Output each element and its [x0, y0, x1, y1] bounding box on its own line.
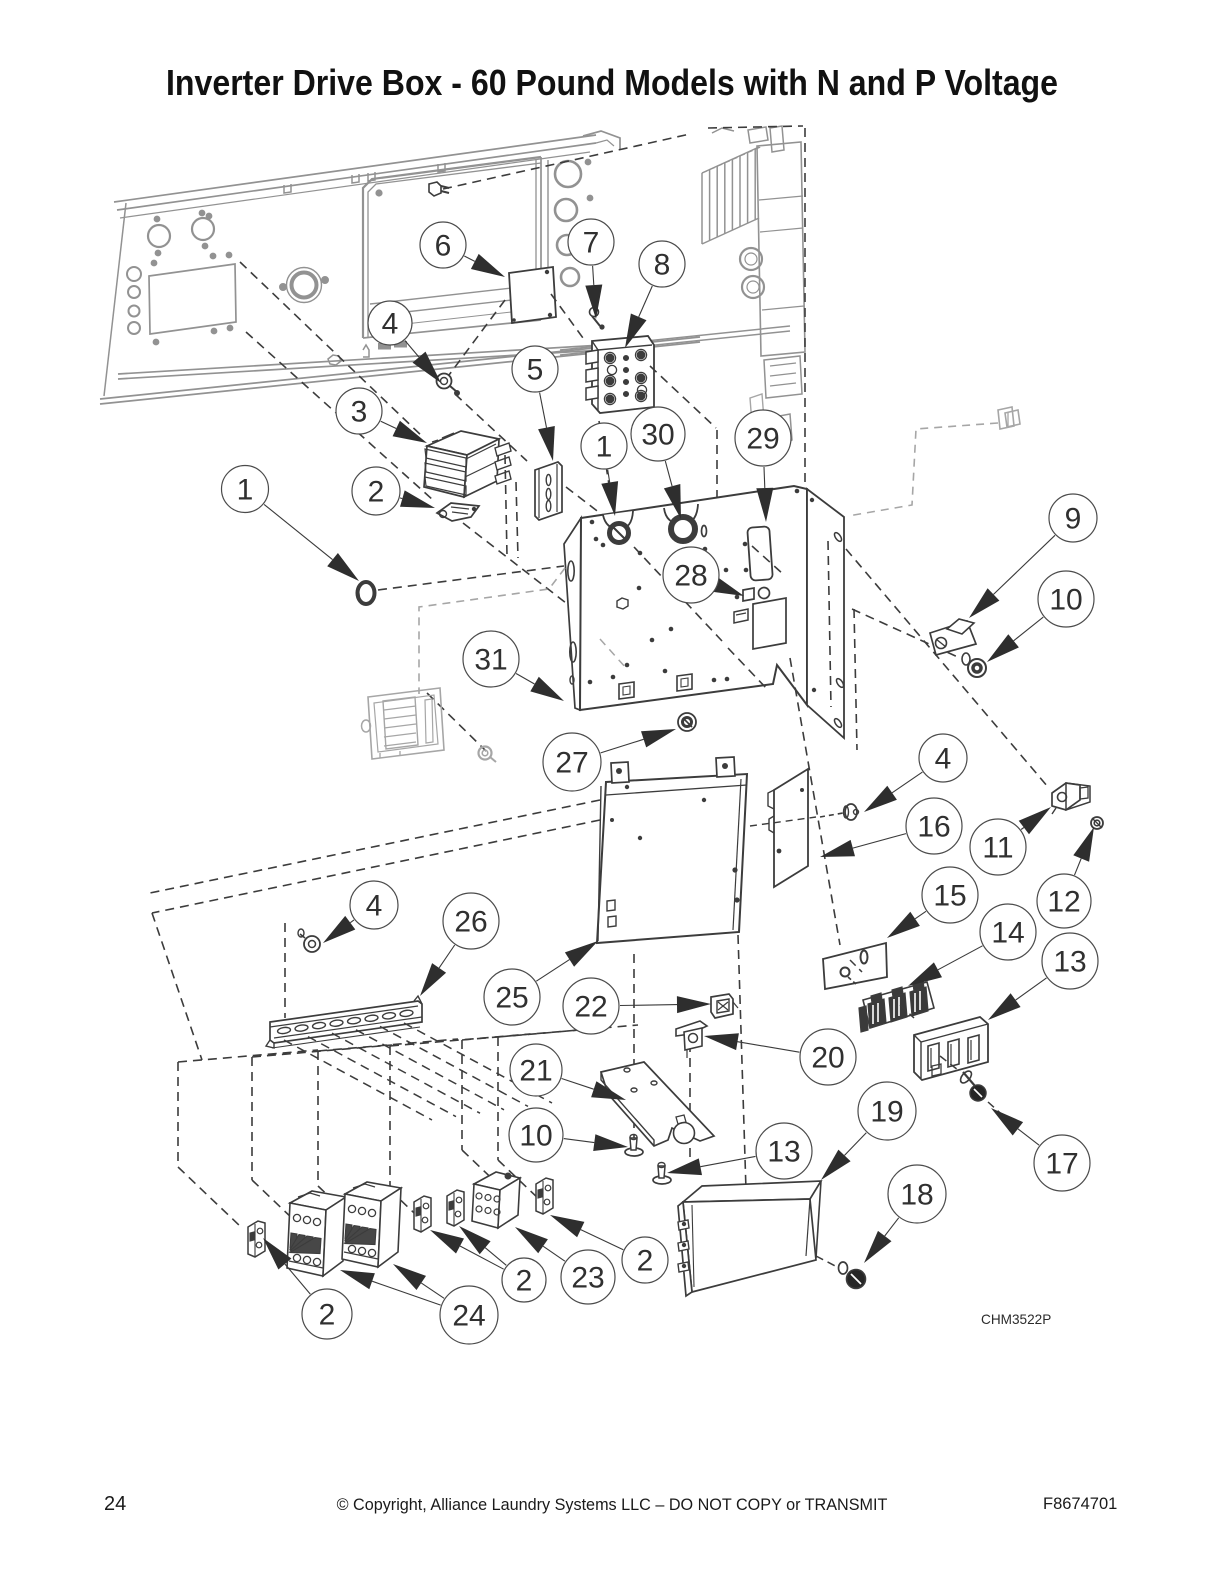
- svg-text:15: 15: [933, 880, 966, 913]
- svg-text:21: 21: [519, 1055, 552, 1088]
- svg-text:17: 17: [1045, 1148, 1078, 1181]
- svg-text:10: 10: [1049, 584, 1082, 617]
- svg-text:25: 25: [495, 982, 528, 1015]
- svg-text:14: 14: [991, 917, 1024, 950]
- svg-text:Inverter Drive Box - 60 Pound: Inverter Drive Box - 60 Pound Models wit…: [166, 62, 1058, 103]
- svg-text:2: 2: [368, 476, 385, 509]
- svg-text:5: 5: [527, 354, 544, 387]
- svg-text:7: 7: [583, 227, 600, 260]
- svg-text:3: 3: [351, 396, 368, 429]
- svg-text:4: 4: [382, 308, 399, 341]
- svg-text:4: 4: [366, 890, 383, 923]
- svg-text:13: 13: [1053, 946, 1086, 979]
- svg-text:CHM3522P: CHM3522P: [981, 1312, 1051, 1327]
- svg-text:F8674701: F8674701: [1043, 1495, 1117, 1513]
- svg-text:2: 2: [637, 1245, 654, 1278]
- svg-text:1: 1: [596, 431, 613, 464]
- svg-text:8: 8: [654, 249, 671, 282]
- svg-text:23: 23: [571, 1262, 604, 1295]
- svg-text:20: 20: [811, 1042, 844, 1075]
- svg-text:29: 29: [746, 423, 779, 456]
- svg-text:26: 26: [454, 906, 487, 939]
- svg-text:18: 18: [900, 1179, 933, 1212]
- svg-text:28: 28: [674, 560, 707, 593]
- svg-text:11: 11: [982, 832, 1013, 865]
- svg-text:10: 10: [519, 1120, 552, 1153]
- svg-text:22: 22: [574, 991, 607, 1024]
- svg-text:13: 13: [767, 1136, 800, 1169]
- svg-text:30: 30: [641, 419, 674, 452]
- svg-text:24: 24: [104, 1493, 126, 1515]
- svg-text:6: 6: [435, 230, 452, 263]
- svg-text:16: 16: [917, 811, 950, 844]
- svg-text:12: 12: [1047, 886, 1080, 919]
- svg-text:24: 24: [452, 1300, 485, 1333]
- svg-text:19: 19: [870, 1096, 903, 1129]
- svg-text:4: 4: [935, 743, 952, 776]
- svg-text:9: 9: [1065, 503, 1082, 536]
- svg-text:31: 31: [474, 644, 507, 677]
- svg-text:1: 1: [237, 474, 254, 507]
- svg-text:2: 2: [319, 1299, 336, 1332]
- svg-text:2: 2: [516, 1265, 533, 1298]
- svg-text:27: 27: [555, 747, 588, 780]
- svg-text:© Copyright, Alliance Laundry: © Copyright, Alliance Laundry Systems LL…: [337, 1496, 888, 1514]
